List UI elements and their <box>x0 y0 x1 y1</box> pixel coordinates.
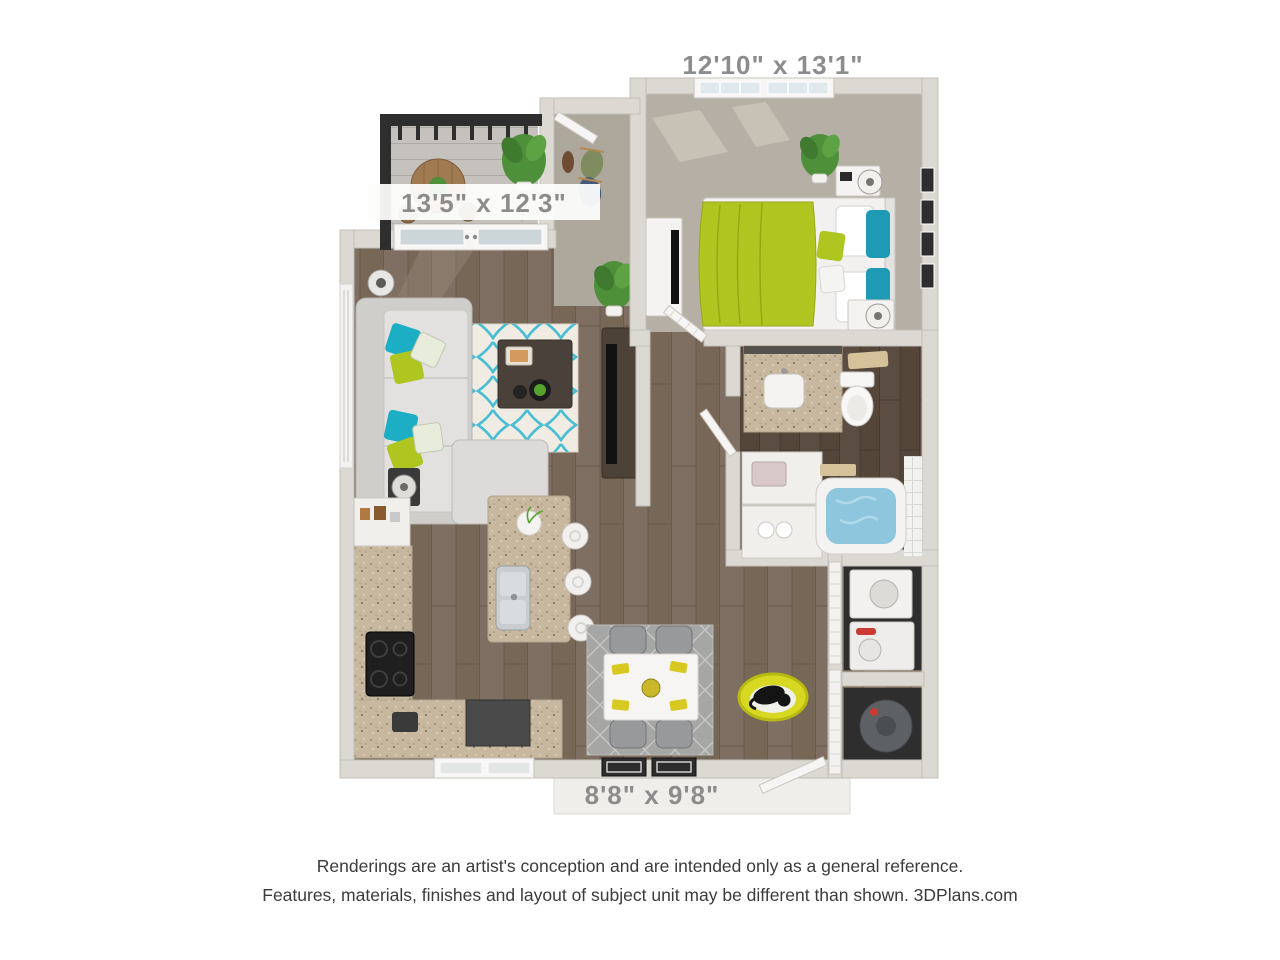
dining-table <box>604 654 698 720</box>
nightstand-bottom <box>848 300 894 330</box>
balcony-railing-left <box>380 114 391 250</box>
tub-water <box>826 488 896 544</box>
bathtub <box>816 478 906 554</box>
disclaimer-line-1: Renderings are an artist's conception an… <box>317 856 963 876</box>
disclaimer-line-2: Features, materials, finishes and layout… <box>262 885 1018 905</box>
washer-handle <box>856 628 876 635</box>
french-doors <box>394 224 548 250</box>
curtain-panel <box>340 284 353 468</box>
towel-roll <box>758 522 774 538</box>
dark-cabinet <box>466 700 530 746</box>
bedroom-tv <box>671 230 679 304</box>
kitchen-island <box>488 496 570 642</box>
faucet <box>781 368 787 374</box>
toilet <box>840 372 874 426</box>
water-heater <box>860 700 912 752</box>
hanging-bag <box>562 151 574 173</box>
pantry-shelf <box>352 498 410 546</box>
shower-tile-wall <box>904 456 922 556</box>
dog-bed <box>739 674 807 720</box>
sink <box>764 374 804 408</box>
tv-console <box>602 328 640 478</box>
basket <box>752 462 786 486</box>
kitchen-window <box>434 758 534 778</box>
dimension-label-bedroom: 12'10" x 13'1" <box>682 50 863 80</box>
bedroom-dresser-tv <box>646 218 682 316</box>
floor-lamp <box>368 270 394 296</box>
bedroom-window <box>694 78 834 98</box>
pillow-teal-top <box>866 210 890 258</box>
island-sink <box>496 566 530 630</box>
small-appliance <box>392 712 418 732</box>
bath-mat-top <box>847 351 888 370</box>
coffee-table <box>498 340 572 408</box>
dimension-label-living: 13'5" x 12'3" <box>401 188 567 218</box>
floorplan-svg: 12'10" x 13'1" 13'5" x 12'3" 8'8" x 9'8"… <box>0 0 1280 960</box>
linen-shelves <box>742 452 822 558</box>
nightstand-top <box>836 166 882 196</box>
pillow-lime-accent <box>816 230 846 261</box>
washer-dial <box>859 639 881 661</box>
dimension-label-patio: 8'8" x 9'8" <box>585 780 720 810</box>
floorplan-page: 12'10" x 13'1" 13'5" x 12'3" 8'8" x 9'8"… <box>0 0 1280 960</box>
bath-mat-tub <box>820 464 856 476</box>
tv <box>606 344 617 464</box>
cooktop <box>366 632 414 696</box>
balcony-railing-top <box>380 114 542 126</box>
vanity <box>744 346 842 432</box>
